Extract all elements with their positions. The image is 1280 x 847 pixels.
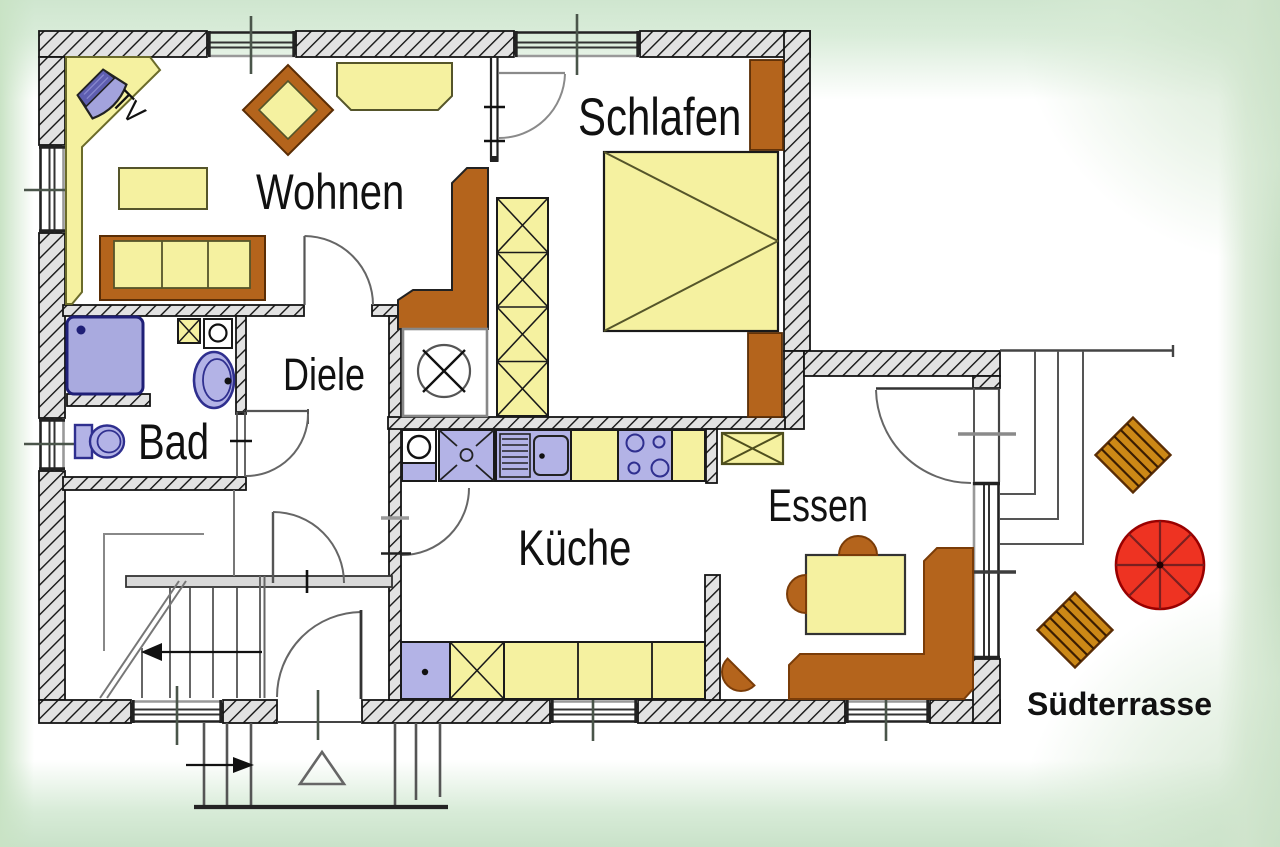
- svg-text:Bad: Bad: [138, 414, 209, 470]
- svg-text:Schlafen: Schlafen: [578, 89, 741, 148]
- svg-text:Essen: Essen: [768, 480, 868, 531]
- svg-text:Wohnen: Wohnen: [256, 164, 404, 220]
- svg-text:Diele: Diele: [283, 349, 365, 400]
- svg-text:Küche: Küche: [518, 520, 631, 576]
- svg-text:Südterrasse: Südterrasse: [1027, 686, 1212, 722]
